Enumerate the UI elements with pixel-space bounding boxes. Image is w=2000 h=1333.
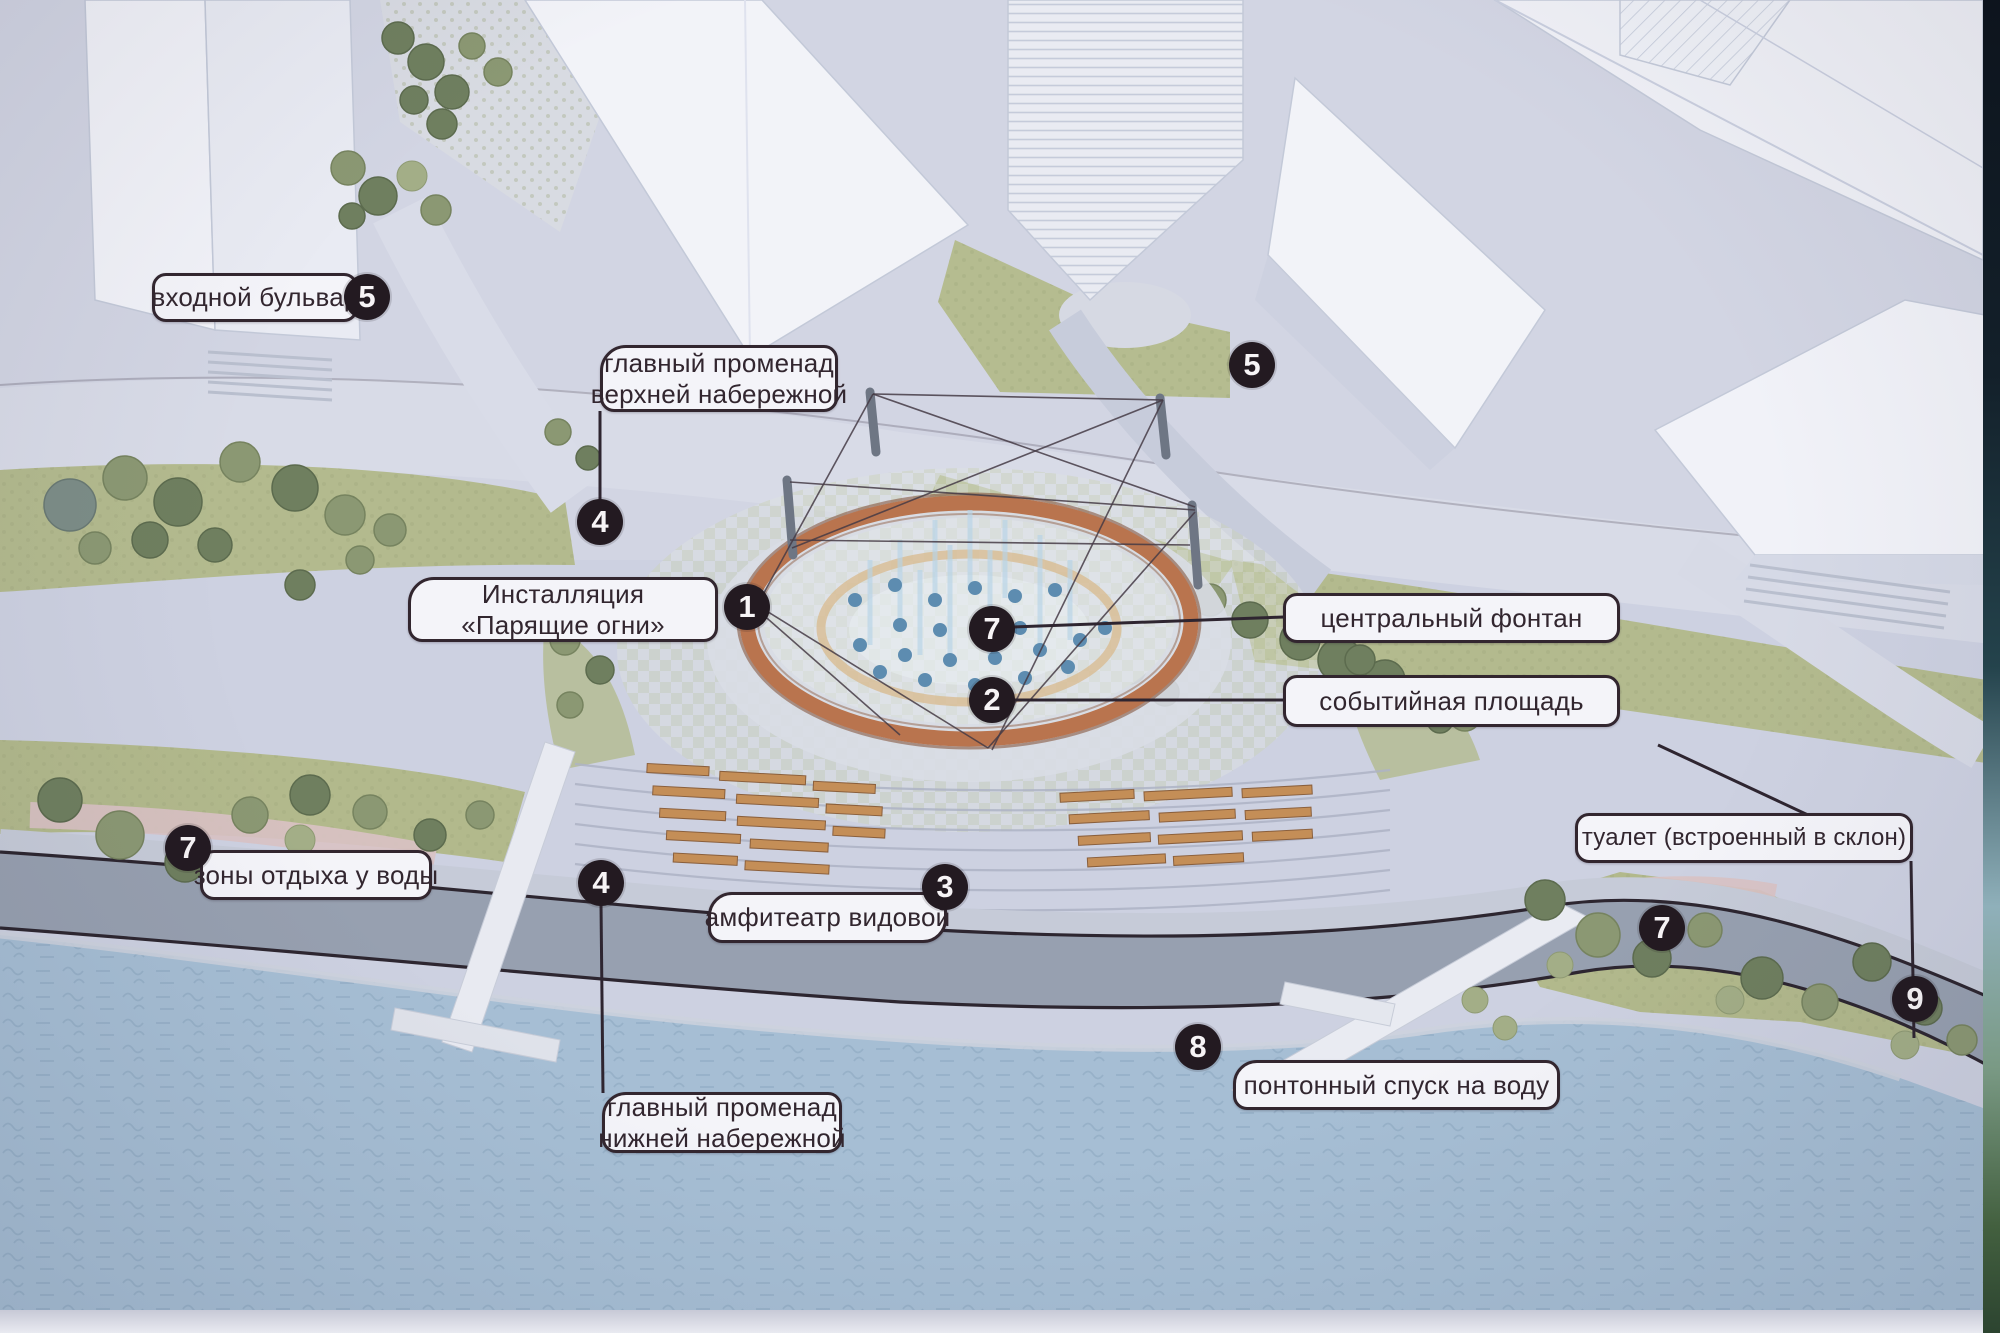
masterplan-photo: входной бульвар главный променад верхней… xyxy=(0,0,2000,1333)
callout-amphitheatre: амфитеатр видовой xyxy=(708,892,947,943)
marker-amphitheatre-3: 3 xyxy=(922,864,968,910)
marker-rest-zones-7: 7 xyxy=(165,825,211,871)
callout-text: Инсталляция xyxy=(482,579,644,610)
callout-text: главный променад xyxy=(604,348,834,379)
callout-text: зоны отдыха у воды xyxy=(194,860,439,891)
marker-upper-promenade-4: 4 xyxy=(577,499,623,545)
marker-right-bank-7: 7 xyxy=(1639,905,1685,951)
marker-event-square-2: 2 xyxy=(969,677,1015,723)
callout-central-fountain: центральный фонтан xyxy=(1283,593,1620,643)
callout-text: понтонный спуск на воду xyxy=(1244,1070,1550,1101)
callout-entrance-boulevard: входной бульвар xyxy=(152,273,358,322)
callout-text: нижней набережной xyxy=(598,1123,845,1154)
callout-toilet: туалет (встроенный в склон) xyxy=(1575,813,1913,863)
callout-text: «Парящие огни» xyxy=(461,610,665,641)
callout-upper-promenade: главный променад верхней набережной xyxy=(600,345,838,412)
callout-pontoon: понтонный спуск на воду xyxy=(1233,1060,1560,1110)
marker-installation-1: 1 xyxy=(724,584,770,630)
callout-text: верхней набережной xyxy=(591,379,848,410)
callout-text: туалет (встроенный в склон) xyxy=(1582,824,1906,852)
callout-lower-promenade: главный променад нижней набережной xyxy=(602,1092,842,1153)
marker-plaza-5: 5 xyxy=(1229,342,1275,388)
board-bottom-edge xyxy=(0,1310,2000,1333)
map-illustration xyxy=(0,0,2000,1333)
callout-rest-zones: зоны отдыха у воды xyxy=(200,850,432,900)
photo-background-right-edge xyxy=(1983,0,2000,1333)
callout-event-square: событийная площадь xyxy=(1283,675,1620,727)
marker-central-fountain-7: 7 xyxy=(969,606,1015,652)
callout-text: событийная площадь xyxy=(1319,686,1584,717)
marker-lower-promenade-4: 4 xyxy=(578,860,624,906)
callout-text: главный променад xyxy=(607,1092,837,1123)
callout-text: центральный фонтан xyxy=(1320,603,1582,634)
callout-installation: Инсталляция «Парящие огни» xyxy=(408,577,718,642)
marker-pontoon-8: 8 xyxy=(1175,1024,1221,1070)
callout-text: входной бульвар xyxy=(151,282,358,313)
callout-text: амфитеатр видовой xyxy=(705,902,951,933)
marker-toilet-9: 9 xyxy=(1892,976,1938,1022)
marker-entrance-5: 5 xyxy=(344,274,390,320)
